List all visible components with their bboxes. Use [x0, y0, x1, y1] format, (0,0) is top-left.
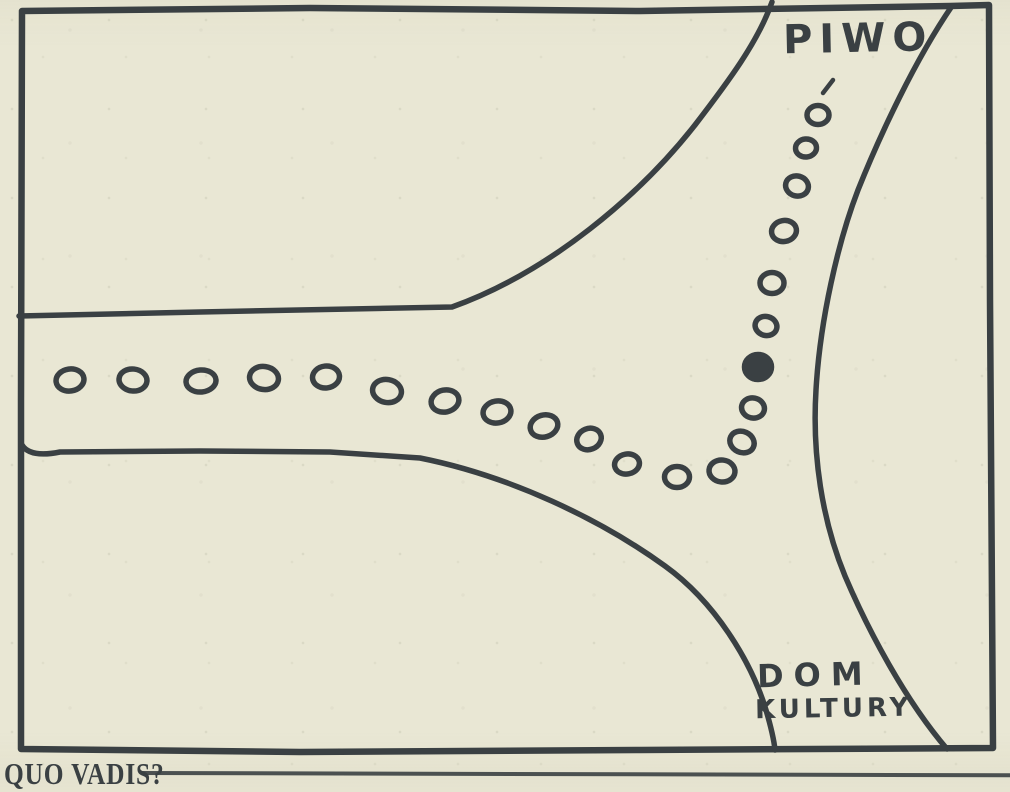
road-edge-right	[815, 6, 952, 749]
footprint-dot	[783, 173, 810, 198]
footprint-dot	[770, 218, 798, 243]
footprint-dot	[248, 365, 280, 392]
footprint-dot	[528, 412, 561, 441]
footprint-dot	[573, 425, 604, 454]
footprint-dot	[613, 452, 641, 476]
label-dom: DOM	[757, 654, 874, 695]
road-edge-lower	[22, 445, 775, 750]
footprint-dot	[55, 367, 86, 393]
footprint-dot	[665, 467, 690, 488]
frame-border	[21, 5, 993, 752]
footprint-dot	[753, 314, 779, 338]
footprint-dot	[726, 427, 758, 457]
footprint-dot-filled	[745, 355, 772, 380]
footprint-trail	[55, 106, 829, 488]
label-piwo: PIWO	[783, 14, 934, 63]
footprint-dot	[708, 459, 736, 484]
footprint-dot	[760, 273, 784, 294]
footprint-dot	[807, 106, 829, 125]
label-kultury: KULTURY	[755, 693, 913, 726]
footprint-dot	[481, 399, 512, 426]
cartoon-page: { "figure": { "type": "hand-drawn road-j…	[0, 0, 1010, 778]
road-edge-upper	[19, 2, 772, 316]
footprint-dot	[118, 368, 148, 393]
cartoon-drawing: PIWO DOM KULTURY	[0, 0, 1010, 778]
footprint-dot	[371, 377, 404, 405]
footprint-dot	[740, 396, 767, 420]
footprint-dot	[429, 387, 461, 414]
footprint-dot	[795, 138, 817, 158]
footprint-dot	[311, 365, 340, 390]
footprint-accent-mark	[823, 80, 833, 93]
footprint-dot	[185, 369, 217, 394]
